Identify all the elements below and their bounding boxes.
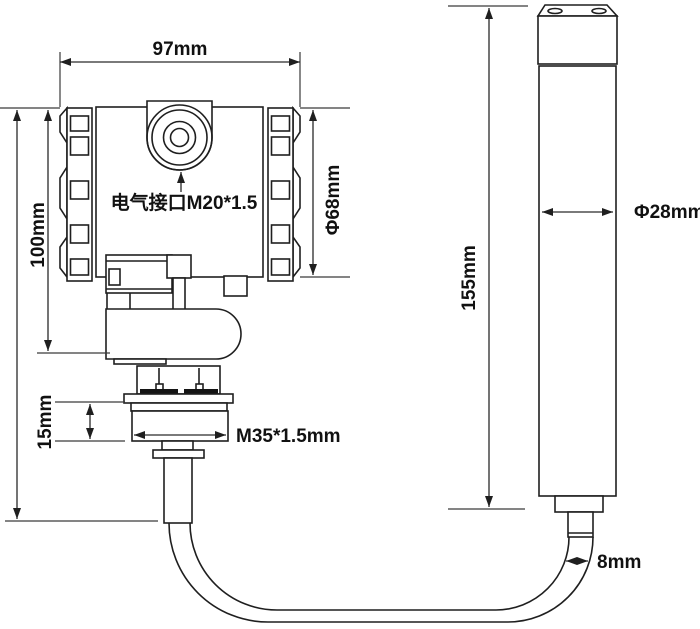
cable-gland <box>164 458 192 523</box>
thread-m35 <box>132 411 228 441</box>
probe-collar <box>555 496 603 512</box>
dim-cable-diameter: 8mm <box>566 552 641 573</box>
cable <box>169 523 593 622</box>
probe-cap <box>538 16 617 64</box>
dim-label-housing-height: 100mm <box>28 202 49 268</box>
dim-label-thread-spec: M35*1.5mm <box>236 426 341 447</box>
dim-thread-height: 15mm <box>35 395 125 450</box>
dim-label-top-width: 97mm <box>153 39 208 60</box>
probe-body <box>539 66 616 496</box>
transmitter-housing <box>60 101 300 523</box>
dim-label-probe-length: 155mm <box>459 245 480 311</box>
process-connection <box>124 366 233 523</box>
dim-label-thread-height: 15mm <box>35 395 56 450</box>
drawing-svg: 97mm 100mm Φ68mm 电气接口M20*1.5 15mm M35*1.… <box>0 0 700 629</box>
oval-flange <box>106 309 241 359</box>
left-cap <box>60 108 92 281</box>
dim-probe-length: 155mm <box>448 6 528 509</box>
probe <box>538 5 617 537</box>
electrical-port-boss <box>147 101 212 170</box>
dim-label-housing-diameter: Φ68mm <box>323 165 344 236</box>
dim-label-cable-diameter: 8mm <box>597 552 641 573</box>
dim-housing-diameter: Φ68mm <box>300 110 350 277</box>
electrical-port-label: 电气接口M20*1.5 <box>111 191 258 214</box>
right-cap <box>268 108 300 281</box>
dim-label-probe-diameter: Φ28mm <box>634 202 700 223</box>
flange-tab <box>114 359 166 364</box>
dim-top-width: 97mm <box>60 39 300 107</box>
engineering-drawing: 97mm 100mm Φ68mm 电气接口M20*1.5 15mm M35*1.… <box>0 0 700 629</box>
